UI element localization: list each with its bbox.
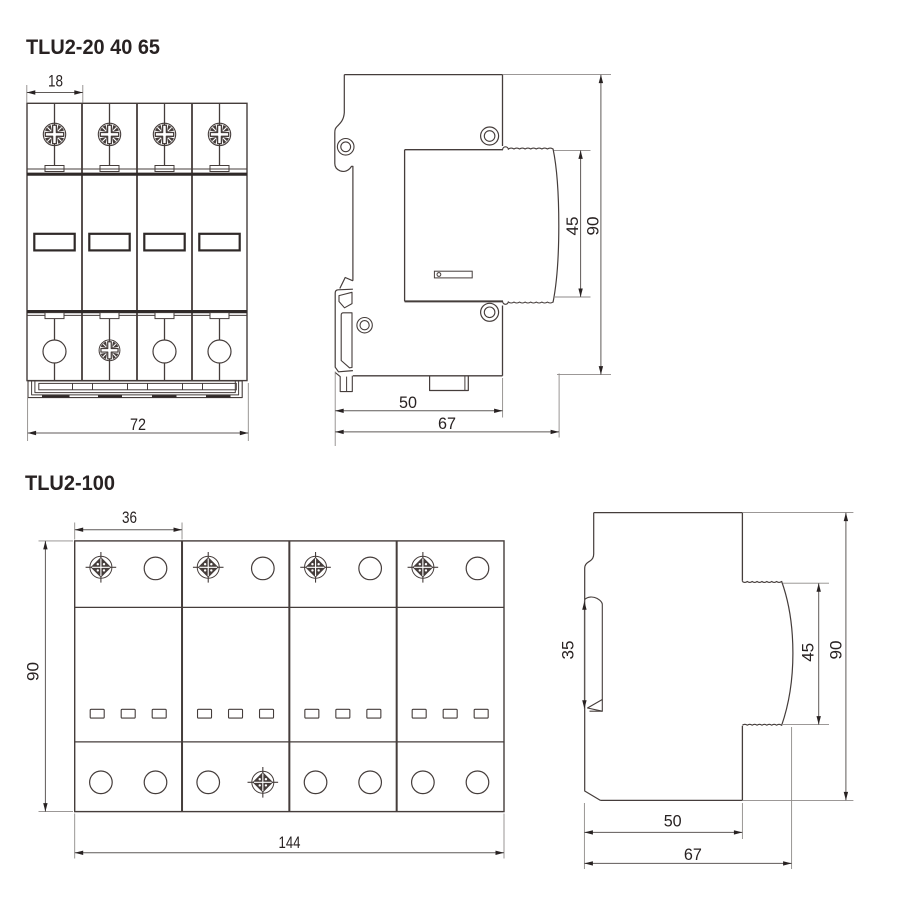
svg-text:67: 67	[684, 845, 702, 864]
svg-text:TLU2-20 40 65: TLU2-20 40 65	[26, 35, 160, 59]
svg-text:TLU2-100: TLU2-100	[25, 471, 115, 495]
svg-text:90: 90	[827, 641, 846, 660]
svg-text:67: 67	[438, 414, 456, 433]
svg-text:36: 36	[122, 509, 137, 527]
svg-text:50: 50	[664, 812, 682, 831]
svg-text:144: 144	[279, 833, 301, 852]
svg-text:18: 18	[48, 73, 63, 91]
svg-text:90: 90	[24, 662, 43, 681]
svg-text:50: 50	[399, 393, 417, 412]
svg-text:90: 90	[584, 217, 603, 236]
svg-text:45: 45	[799, 643, 818, 662]
svg-text:45: 45	[563, 217, 582, 236]
svg-text:35: 35	[558, 641, 577, 660]
svg-text:72: 72	[130, 416, 146, 434]
